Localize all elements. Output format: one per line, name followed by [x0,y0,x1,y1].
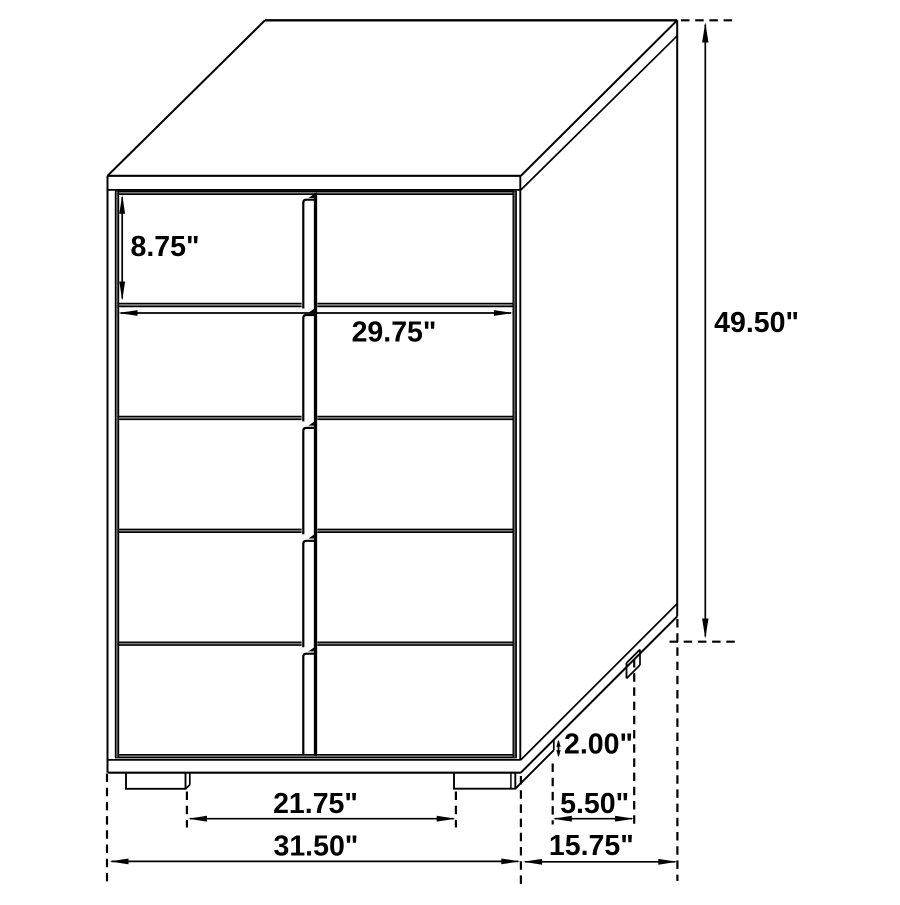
svg-text:2.00": 2.00" [564,729,633,761]
svg-text:49.50": 49.50" [714,307,799,339]
svg-text:21.75": 21.75" [273,788,358,820]
svg-text:15.75": 15.75" [549,830,634,862]
svg-text:31.50": 31.50" [273,831,358,863]
svg-text:8.75": 8.75" [131,231,200,263]
svg-text:29.75": 29.75" [352,316,437,348]
svg-text:5.50": 5.50" [560,788,629,820]
